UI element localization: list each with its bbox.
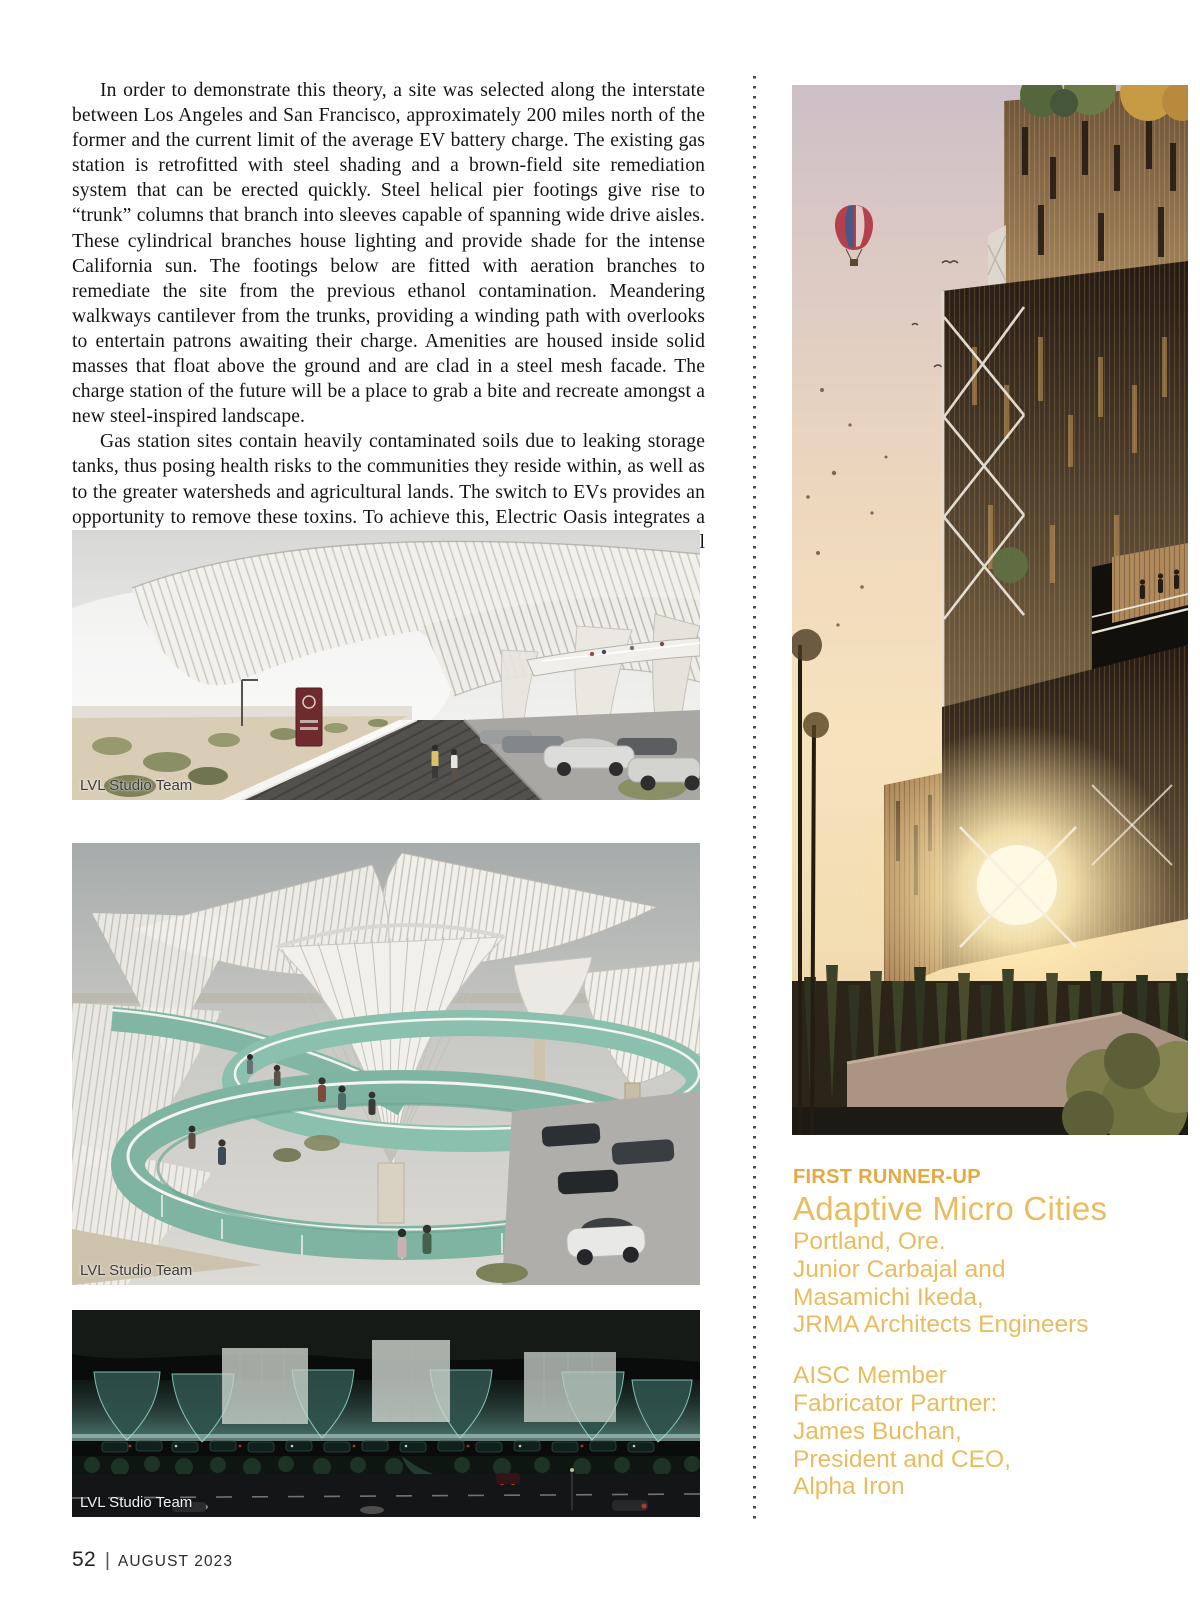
award-partner: President and CEO,	[793, 1446, 1193, 1474]
issue-date: AUGUST 2023	[118, 1553, 233, 1571]
footer-separator: |	[105, 1550, 110, 1572]
award-designer: JRMA Architects Engineers	[793, 1311, 1193, 1339]
building-rendering-illustration	[792, 85, 1188, 1135]
award-partner: AISC Member	[793, 1362, 1193, 1390]
dotted-divider	[753, 76, 756, 1520]
figure-caption: LVL Studio Team	[80, 1494, 192, 1511]
award-location: Portland, Ore.	[793, 1228, 1193, 1256]
figure-caption: LVL Studio Team	[80, 777, 192, 794]
article-paragraph: In order to demonstrate this theory, a s…	[72, 78, 705, 429]
award-block: FIRST RUNNER-UP Adaptive Micro Cities Po…	[793, 1166, 1193, 1501]
magazine-page: In order to demonstrate this theory, a s…	[0, 0, 1200, 1606]
figure-daytime-rendering: LVL Studio Team	[72, 530, 700, 800]
award-designer: Junior Carbajal and	[793, 1256, 1193, 1284]
article-body: In order to demonstrate this theory, a s…	[72, 78, 705, 580]
page-number: 52	[72, 1548, 96, 1572]
daytime-rendering-illustration	[72, 530, 700, 800]
award-designer: Masamichi Ikeda,	[793, 1284, 1193, 1312]
award-title: Adaptive Micro Cities	[793, 1190, 1193, 1228]
night-rendering-illustration	[72, 1310, 700, 1517]
award-partner: Fabricator Partner:	[793, 1390, 1193, 1418]
award-partner: James Buchan,	[793, 1418, 1193, 1446]
award-label: FIRST RUNNER-UP	[793, 1166, 1193, 1189]
award-partner: Alpha Iron	[793, 1473, 1193, 1501]
figure-caption: LVL Studio Team	[80, 1262, 192, 1279]
figure-walkway-rendering: LVL Studio Team	[72, 843, 700, 1285]
page-footer: 52 | AUGUST 2023	[72, 1548, 233, 1572]
figure-night-rendering: LVL Studio Team	[72, 1310, 700, 1517]
walkway-rendering-illustration	[72, 843, 700, 1285]
parked-cars	[102, 1441, 654, 1452]
hero-building-rendering	[792, 85, 1188, 1135]
